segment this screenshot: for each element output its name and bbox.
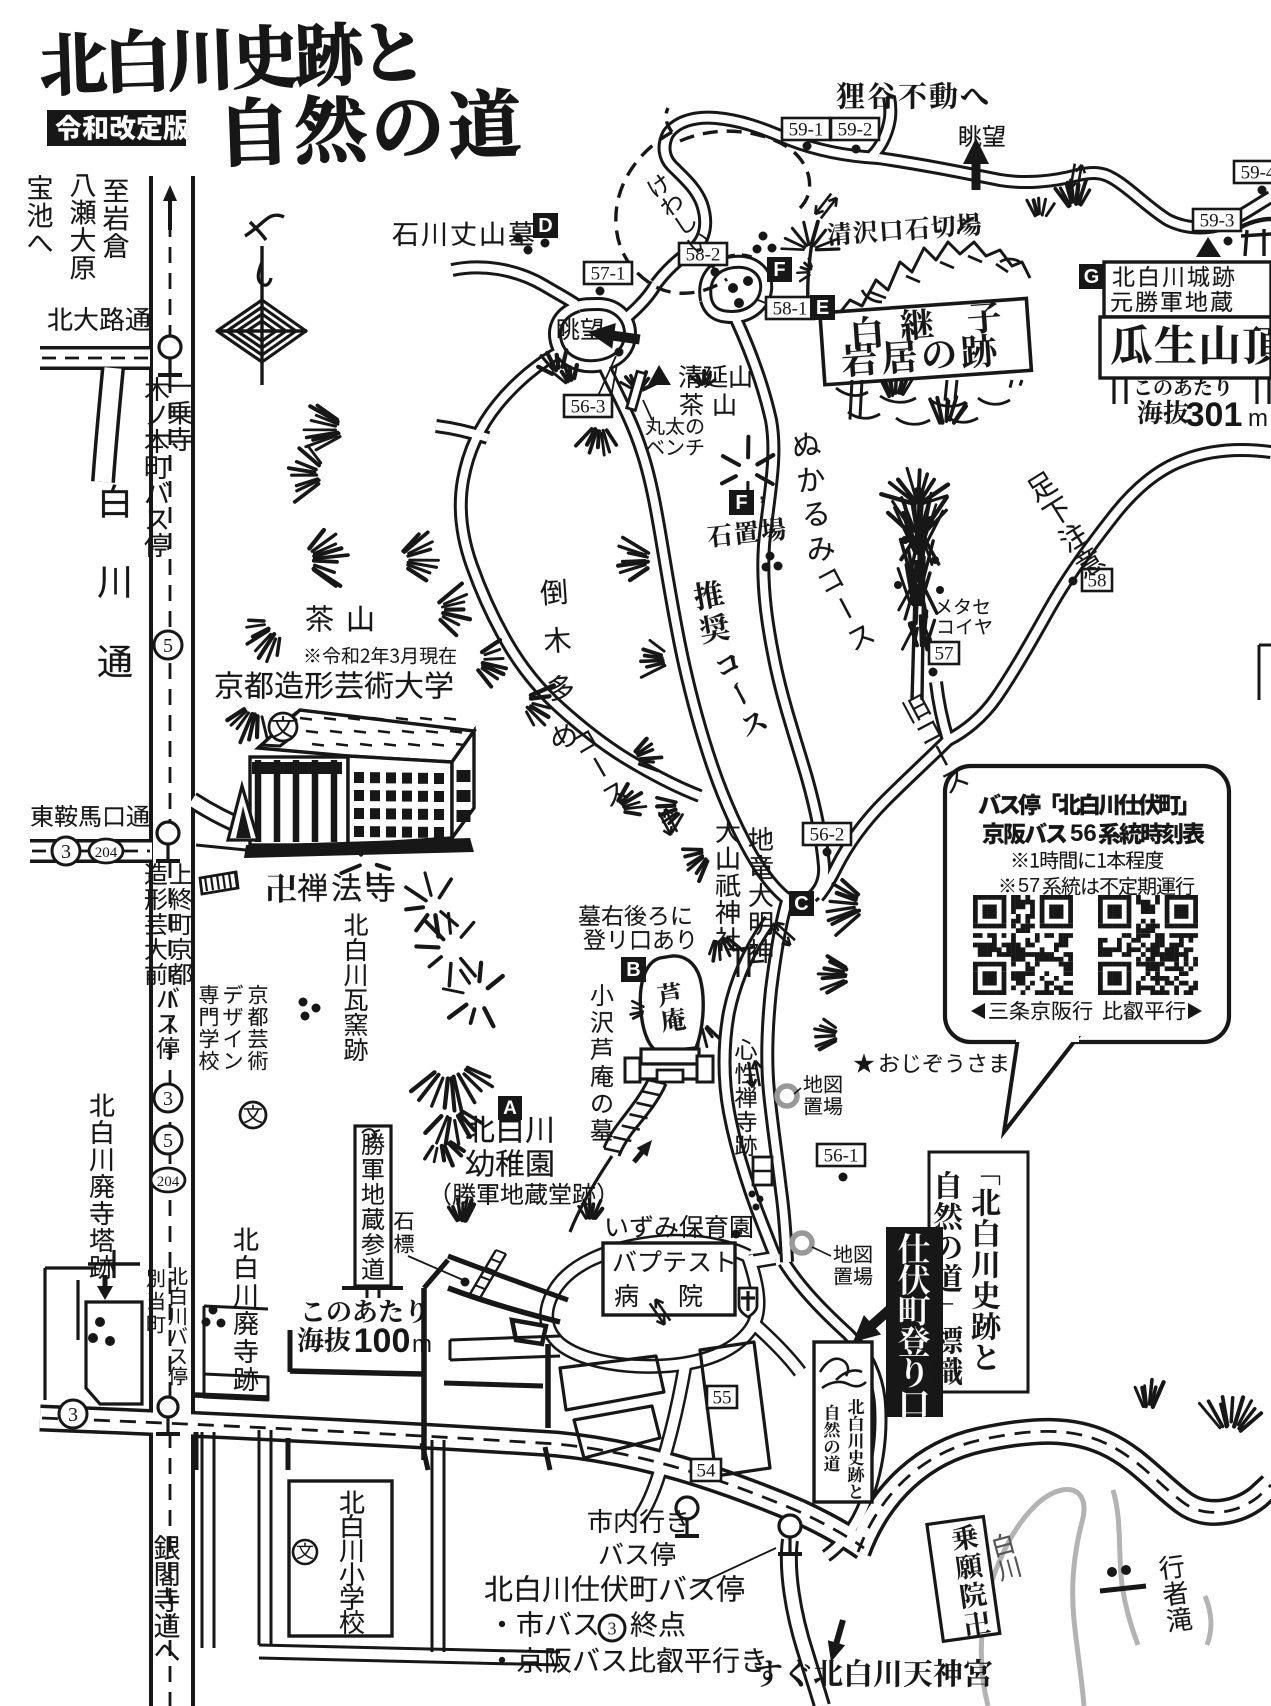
svg-text:301: 301: [1186, 396, 1243, 434]
svg-text:58-2: 58-2: [686, 245, 721, 266]
svg-text:204: 204: [157, 1174, 180, 1190]
svg-text:59-3: 59-3: [1200, 211, 1235, 232]
svg-text:56-2: 56-2: [810, 825, 845, 846]
svg-text:204: 204: [95, 845, 118, 861]
svg-text:58: 58: [1088, 571, 1107, 592]
svg-text:E: E: [816, 297, 829, 319]
svg-text:57: 57: [1018, 875, 1040, 897]
svg-text:5: 5: [163, 635, 173, 657]
svg-text:3: 3: [61, 841, 71, 863]
svg-text:3: 3: [608, 1619, 617, 1639]
svg-text:57-1: 57-1: [591, 264, 626, 285]
svg-text:59-2: 59-2: [838, 120, 873, 141]
svg-text:G: G: [1084, 266, 1100, 288]
svg-text:F: F: [773, 259, 785, 281]
svg-text:59-1: 59-1: [789, 120, 824, 141]
svg-text:58-1: 58-1: [773, 299, 808, 320]
svg-text:C: C: [794, 893, 808, 915]
svg-text:A: A: [503, 1098, 517, 1119]
svg-text:m: m: [412, 1331, 432, 1358]
svg-text:D: D: [538, 215, 552, 237]
svg-text:3: 3: [163, 1088, 173, 1110]
svg-text:3: 3: [68, 1404, 78, 1426]
svg-text:F: F: [735, 492, 747, 514]
svg-text:’: ’: [759, 492, 765, 517]
svg-text:B: B: [626, 959, 640, 981]
svg-text:56-1: 56-1: [824, 1146, 859, 1167]
svg-text:55: 55: [713, 1388, 732, 1409]
svg-text:56-3: 56-3: [571, 397, 606, 418]
svg-text:54: 54: [697, 1461, 717, 1482]
svg-text:56: 56: [1070, 820, 1097, 847]
svg-text:5: 5: [163, 1130, 173, 1152]
svg-text:57: 57: [935, 644, 954, 665]
svg-text:100: 100: [354, 1322, 411, 1360]
svg-text:m: m: [1248, 405, 1268, 432]
svg-text:59-4: 59-4: [1241, 163, 1271, 184]
